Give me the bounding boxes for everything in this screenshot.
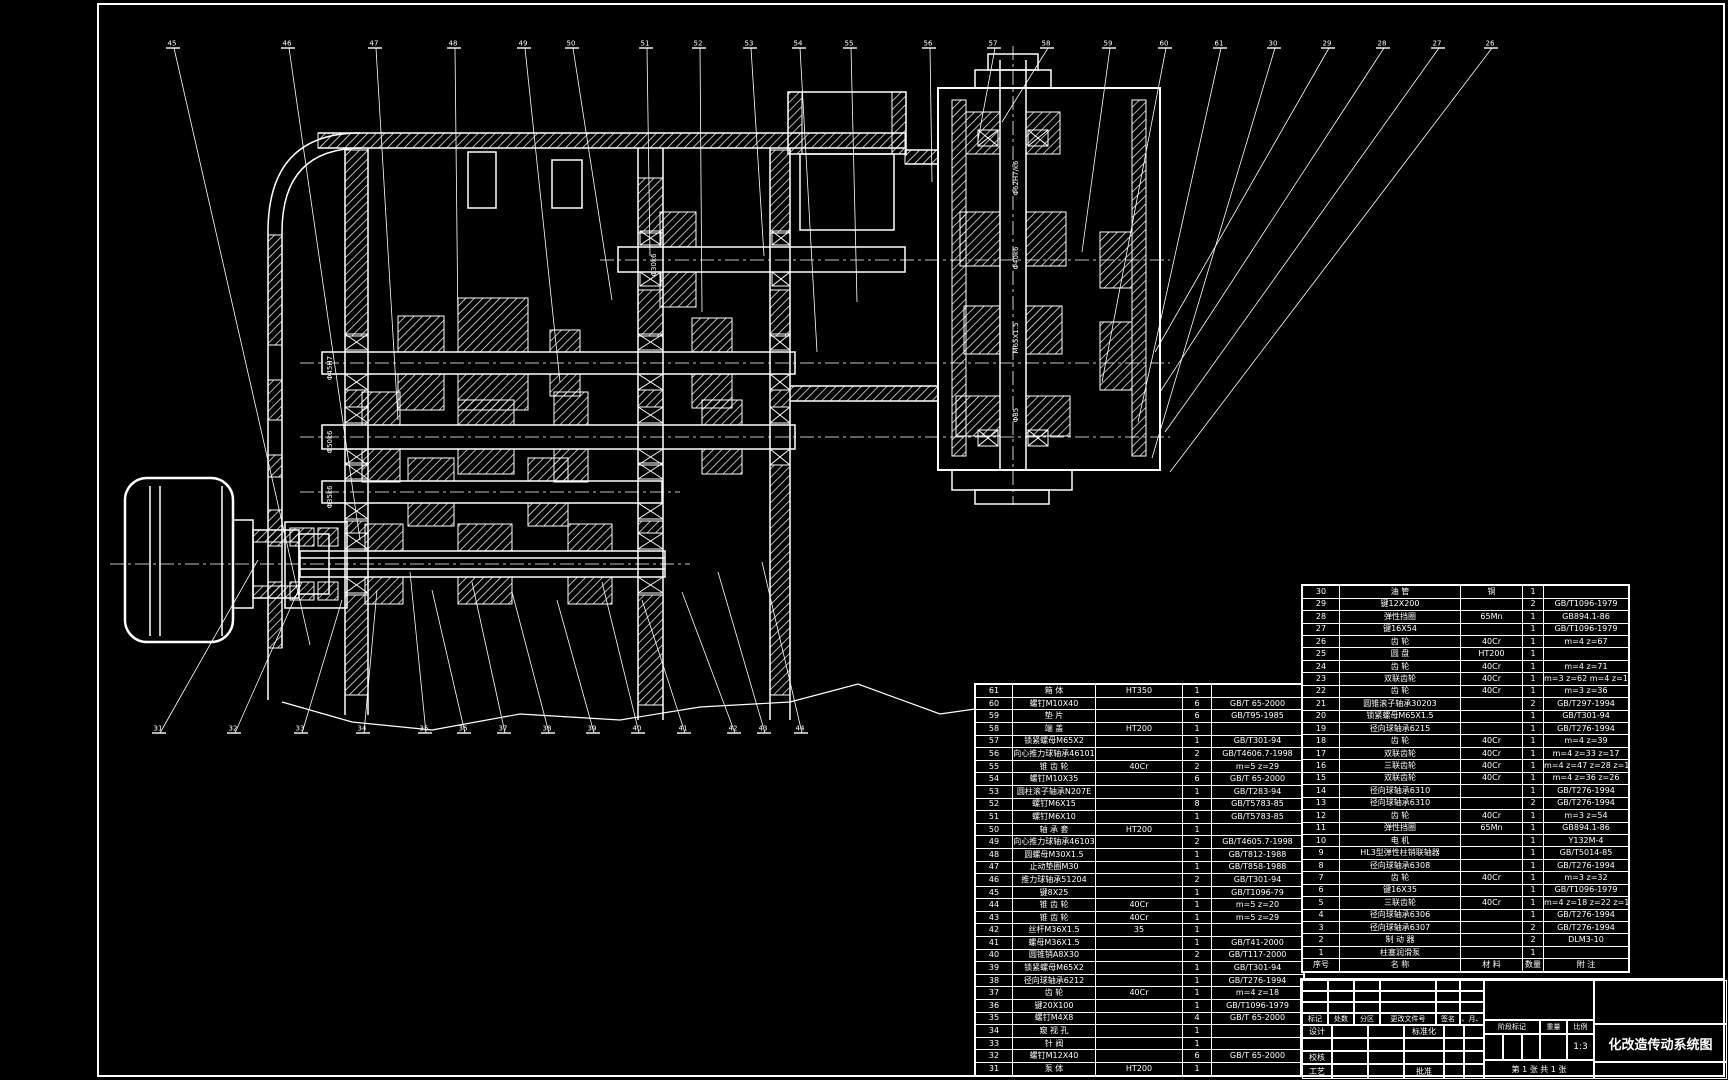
bom-cell: 键12X200 bbox=[1340, 598, 1461, 610]
title-block-cell: 工艺 bbox=[1302, 1064, 1332, 1079]
bom-cell: 齿 轮 bbox=[1340, 685, 1461, 697]
bom-cell: 53 bbox=[975, 785, 1013, 798]
bom-cell: 2 bbox=[1183, 748, 1212, 761]
part-callout: 43 bbox=[759, 725, 768, 733]
bom-cell: 8 bbox=[1302, 859, 1340, 871]
part-callout: 48 bbox=[449, 40, 458, 48]
bom-cell: 19 bbox=[1302, 723, 1340, 735]
bom-cell bbox=[1212, 1063, 1305, 1076]
title-block-cell bbox=[1484, 980, 1594, 1020]
bom-cell: 1 bbox=[1523, 859, 1544, 871]
bom-cell: 40Cr bbox=[1461, 897, 1523, 909]
bom-cell: 6 bbox=[1183, 710, 1212, 723]
bom-cell: 2 bbox=[1183, 836, 1212, 849]
bom-cell bbox=[1096, 697, 1183, 710]
bom-cell: 52 bbox=[975, 798, 1013, 811]
bom-cell: GB/T301-94 bbox=[1212, 735, 1305, 748]
bom-cell: 1 bbox=[1523, 897, 1544, 909]
bom-cell: 螺钉M6X10 bbox=[1013, 811, 1096, 824]
bom-cell: 齿 轮 bbox=[1340, 635, 1461, 647]
bom-cell: 1 bbox=[1523, 648, 1544, 660]
bom-cell bbox=[1461, 598, 1523, 610]
bom-cell bbox=[1461, 710, 1523, 722]
bom-cell: 1 bbox=[1523, 673, 1544, 685]
bom-cell: 材 料 bbox=[1461, 959, 1523, 972]
part-callout: 28 bbox=[1378, 40, 1387, 48]
bom-cell: 端 盖 bbox=[1013, 722, 1096, 735]
bom-cell: 齿 轮 bbox=[1340, 735, 1461, 747]
bom-cell: 1 bbox=[1523, 946, 1544, 958]
bom-cell: 齿 轮 bbox=[1013, 987, 1096, 1000]
title-block-cell bbox=[1332, 1025, 1368, 1038]
bom-cell: 57 bbox=[975, 735, 1013, 748]
bom-cell: 55 bbox=[975, 760, 1013, 773]
bom-cell: 60 bbox=[975, 697, 1013, 710]
title-block-cell bbox=[1484, 1034, 1503, 1060]
bom-cell: 2 bbox=[1523, 922, 1544, 934]
bom-cell: 35 bbox=[1096, 924, 1183, 937]
title-block-cell bbox=[1460, 991, 1484, 1002]
bom-cell bbox=[1096, 937, 1183, 950]
title-block-cell bbox=[1444, 1038, 1464, 1051]
bom-cell: GB/T5014-85 bbox=[1544, 847, 1630, 859]
title-block-cell: 分区 bbox=[1354, 1013, 1380, 1025]
bom-cell: 1 bbox=[1523, 834, 1544, 846]
dimension-text: Φ35k6 bbox=[326, 485, 334, 508]
bom-cell bbox=[1096, 1025, 1183, 1038]
title-block-cell: 标记 bbox=[1302, 1013, 1328, 1025]
title-block-cell: 第 1 张 共 1 张 bbox=[1484, 1060, 1594, 1079]
bom-cell bbox=[1096, 861, 1183, 874]
bom-cell: 40Cr bbox=[1461, 735, 1523, 747]
title-block-cell bbox=[1540, 1034, 1567, 1060]
part-callout: 60 bbox=[1160, 40, 1169, 48]
bom-cell: 5 bbox=[1302, 897, 1340, 909]
bom-cell: 40Cr bbox=[1461, 635, 1523, 647]
title-block-cell bbox=[1354, 980, 1380, 991]
dimension-text: Φ85 bbox=[1012, 408, 1020, 422]
bom-cell: GB/T301-94 bbox=[1212, 962, 1305, 975]
bom-cell bbox=[1096, 1012, 1183, 1025]
bom-cell: 1 bbox=[1183, 974, 1212, 987]
bom-cell: GB/T1096-79 bbox=[1212, 886, 1305, 899]
bom-cell: 9 bbox=[1302, 847, 1340, 859]
bom-cell: 54 bbox=[975, 773, 1013, 786]
bom-cell bbox=[1461, 922, 1523, 934]
part-callout: 32 bbox=[229, 725, 238, 733]
bom-cell: 三联齿轮 bbox=[1340, 897, 1461, 909]
bom-cell: GB/T297-1994 bbox=[1544, 698, 1630, 710]
bom-cell: 轴 承 套 bbox=[1013, 823, 1096, 836]
bom-cell: 键16X54 bbox=[1340, 623, 1461, 635]
bom-cell: m=3 z=32 bbox=[1544, 872, 1630, 884]
bom-cell: 1 bbox=[1523, 723, 1544, 735]
title-block-cell bbox=[1464, 1064, 1484, 1079]
bom-cell: GB/T276-1994 bbox=[1544, 922, 1630, 934]
bom-cell: 59 bbox=[975, 710, 1013, 723]
bom-cell: GB/T812-1988 bbox=[1212, 848, 1305, 861]
bom-cell bbox=[1461, 797, 1523, 809]
bom-cell bbox=[1461, 623, 1523, 635]
bom-cell bbox=[1461, 884, 1523, 896]
bom-cell: 径向球轴承6215 bbox=[1340, 723, 1461, 735]
title-block-cell bbox=[1436, 980, 1460, 991]
bom-cell: 柱塞润滑泵 bbox=[1340, 946, 1461, 958]
bom-cell: 圆锥滚子轴承30203 bbox=[1340, 698, 1461, 710]
bom-cell bbox=[1096, 949, 1183, 962]
bom-cell: 1 bbox=[1523, 660, 1544, 672]
dimension-text: M65X1.5 bbox=[1012, 323, 1020, 354]
bom-cell: 56 bbox=[975, 748, 1013, 761]
bom-cell: GB/T4605.7-1998 bbox=[1212, 836, 1305, 849]
bom-cell: DLM3-10 bbox=[1544, 934, 1630, 946]
bom-cell bbox=[1461, 847, 1523, 859]
bom-cell: GB/T5783-85 bbox=[1212, 798, 1305, 811]
part-callout: 36 bbox=[459, 725, 468, 733]
bom-cell: 20 bbox=[1302, 710, 1340, 722]
bom-cell: 29 bbox=[1302, 598, 1340, 610]
bom-cell: 40Cr bbox=[1461, 760, 1523, 772]
bom-cell: 49 bbox=[975, 836, 1013, 849]
title-block-cell bbox=[1302, 991, 1328, 1002]
bom-cell: 1 bbox=[1183, 811, 1212, 824]
bom-cell: 40Cr bbox=[1461, 772, 1523, 784]
bom-cell: 13 bbox=[1302, 797, 1340, 809]
bom-cell: 27 bbox=[1302, 623, 1340, 635]
bom-cell: 38 bbox=[975, 974, 1013, 987]
title-block-cell: 1:3 bbox=[1567, 1034, 1594, 1060]
bom-cell: 58 bbox=[975, 722, 1013, 735]
part-callout: 39 bbox=[588, 725, 597, 733]
bom-cell bbox=[1461, 723, 1523, 735]
bom-cell: 1 bbox=[1183, 684, 1212, 697]
bom-cell: 28 bbox=[1302, 611, 1340, 623]
bom-cell: 2 bbox=[1183, 949, 1212, 962]
bom-cell: 32 bbox=[975, 1050, 1013, 1063]
title-block-cell bbox=[1444, 1064, 1464, 1079]
dimension-text: Φ50k6 bbox=[326, 430, 334, 453]
title-block-cell bbox=[1594, 1062, 1727, 1079]
part-callout: 54 bbox=[794, 40, 803, 48]
bom-cell: 6 bbox=[1302, 884, 1340, 896]
part-callout: 50 bbox=[567, 40, 576, 48]
part-callout: 34 bbox=[358, 725, 367, 733]
bom-cell: 1 bbox=[1523, 884, 1544, 896]
title-block-cell bbox=[1328, 991, 1354, 1002]
bom-cell: 锥 齿 轮 bbox=[1013, 899, 1096, 912]
title-block-cell bbox=[1436, 991, 1460, 1002]
part-callout: 30 bbox=[1269, 40, 1278, 48]
bom-cell: 1 bbox=[1523, 710, 1544, 722]
bom-cell: 25 bbox=[1302, 648, 1340, 660]
title-block-cell bbox=[1380, 991, 1436, 1002]
bom-cell: GB894.1-86 bbox=[1544, 611, 1630, 623]
bom-cell: HL3型弹性柱销联轴器 bbox=[1340, 847, 1461, 859]
bom-cell: 1 bbox=[1183, 848, 1212, 861]
bom-cell: 1 bbox=[1523, 585, 1544, 598]
title-block-cell bbox=[1460, 1002, 1484, 1013]
bom-cell: m=4 z=39 bbox=[1544, 735, 1630, 747]
bom-cell: GB/T117-2000 bbox=[1212, 949, 1305, 962]
title-block-cell bbox=[1404, 1038, 1444, 1051]
title-block-cell bbox=[1404, 1051, 1444, 1064]
bom-cell: 1 bbox=[1183, 924, 1212, 937]
title-block-cell bbox=[1436, 1002, 1460, 1013]
bom-cell: 17 bbox=[1302, 747, 1340, 759]
title-block-cell: 签名 bbox=[1436, 1013, 1460, 1025]
bom-cell: 2 bbox=[1523, 598, 1544, 610]
bom-cell: 39 bbox=[975, 962, 1013, 975]
title-block-cell bbox=[1464, 1025, 1484, 1038]
bom-cell: 40Cr bbox=[1096, 987, 1183, 1000]
part-callout: 35 bbox=[420, 725, 429, 733]
part-callout: 46 bbox=[283, 40, 292, 48]
title-block-cell bbox=[1354, 1002, 1380, 1013]
bom-cell: 双联齿轮 bbox=[1340, 772, 1461, 784]
bom-cell: m=3 z=36 bbox=[1544, 685, 1630, 697]
bom-cell bbox=[1096, 962, 1183, 975]
bom-cell bbox=[1461, 934, 1523, 946]
title-block-cell bbox=[1368, 1025, 1404, 1038]
bom-cell: 14 bbox=[1302, 785, 1340, 797]
bom-cell: 三联齿轮 bbox=[1340, 760, 1461, 772]
bom-cell: 2 bbox=[1183, 760, 1212, 773]
bom-cell: 3 bbox=[1302, 922, 1340, 934]
bom-cell: 4 bbox=[1183, 1012, 1212, 1025]
part-callout: 59 bbox=[1104, 40, 1113, 48]
part-callout: 55 bbox=[845, 40, 854, 48]
part-callout: 26 bbox=[1486, 40, 1495, 48]
bom-cell bbox=[1096, 1000, 1183, 1013]
part-callout: 27 bbox=[1433, 40, 1442, 48]
part-callout: 38 bbox=[543, 725, 552, 733]
bom-cell: 44 bbox=[975, 899, 1013, 912]
title-block-cell: 比例 bbox=[1567, 1020, 1594, 1034]
bom-cell: 双联齿轮 bbox=[1340, 747, 1461, 759]
title-block-cell: 处数 bbox=[1328, 1013, 1354, 1025]
bom-cell: 40Cr bbox=[1461, 810, 1523, 822]
bom-cell: GB/T 65-2000 bbox=[1212, 1050, 1305, 1063]
bom-cell: 径向球轴承6308 bbox=[1340, 859, 1461, 871]
bom-cell: 名 称 bbox=[1340, 959, 1461, 972]
bom-cell: 1 bbox=[1523, 735, 1544, 747]
bom-cell: 1 bbox=[1183, 1037, 1212, 1050]
title-block-cell: 阶段标记 bbox=[1484, 1020, 1540, 1034]
part-callout: 49 bbox=[519, 40, 528, 48]
bom-cell: 65Mn bbox=[1461, 611, 1523, 623]
part-callout: 42 bbox=[729, 725, 738, 733]
title-block-cell bbox=[1332, 1051, 1368, 1064]
bom-cell: GB/T1096-1979 bbox=[1544, 623, 1630, 635]
bom-cell: GB894.1-86 bbox=[1544, 822, 1630, 834]
bom-cell: m=4 z=67 bbox=[1544, 635, 1630, 647]
bom-cell: 40Cr bbox=[1096, 911, 1183, 924]
bom-cell: 23 bbox=[1302, 673, 1340, 685]
title-block-cell bbox=[1332, 1038, 1368, 1051]
bom-cell: 1 bbox=[1183, 785, 1212, 798]
bom-cell: 锥 齿 轮 bbox=[1013, 760, 1096, 773]
part-callout: 58 bbox=[1042, 40, 1051, 48]
bom-cell: 圆 盘 bbox=[1340, 648, 1461, 660]
bom-cell: 1 bbox=[1183, 1025, 1212, 1038]
title-block-cell: 标准化 bbox=[1404, 1025, 1444, 1038]
bom-cell: HT200 bbox=[1461, 648, 1523, 660]
bom-cell: 丝杆M36X1.5 bbox=[1013, 924, 1096, 937]
bom-cell: 26 bbox=[1302, 635, 1340, 647]
bom-cell: GB/T95-1985 bbox=[1212, 710, 1305, 723]
title-block-cell bbox=[1594, 980, 1727, 1024]
bom-cell: GB/T1096-1979 bbox=[1544, 884, 1630, 896]
bom-cell: GB/T301-94 bbox=[1544, 710, 1630, 722]
bom-cell: 制 动 器 bbox=[1340, 934, 1461, 946]
bom-cell: 窥 视 孔 bbox=[1013, 1025, 1096, 1038]
part-callout: 29 bbox=[1323, 40, 1332, 48]
bom-cell bbox=[1461, 859, 1523, 871]
bom-cell: 推力球轴承51204 bbox=[1013, 874, 1096, 887]
bom-cell: m=4 z=18 z=22 z=19 bbox=[1544, 897, 1630, 909]
bom-cell: 24 bbox=[1302, 660, 1340, 672]
bom-cell: 61 bbox=[975, 684, 1013, 697]
title-block-cell bbox=[1464, 1038, 1484, 1051]
bom-cell: 齿 轮 bbox=[1340, 660, 1461, 672]
title-block-cell bbox=[1380, 1002, 1436, 1013]
bom-cell bbox=[1461, 698, 1523, 710]
bom-cell bbox=[1461, 834, 1523, 846]
bom-cell: 1 bbox=[1523, 623, 1544, 635]
bom-cell: GB/T1096-1979 bbox=[1212, 1000, 1305, 1013]
bom-cell: 33 bbox=[975, 1037, 1013, 1050]
bom-cell bbox=[1212, 924, 1305, 937]
bom-cell: 键16X35 bbox=[1340, 884, 1461, 896]
bom-cell: m=5 z=29 bbox=[1212, 911, 1305, 924]
drawing-sheet: 4546474849505152535455565758596061302928… bbox=[0, 0, 1728, 1080]
bom-cell: 4 bbox=[1302, 909, 1340, 921]
bom-cell: GB/T 65-2000 bbox=[1212, 1012, 1305, 1025]
bom-cell: 40Cr bbox=[1096, 760, 1183, 773]
bom-cell: GB/T276-1994 bbox=[1544, 723, 1630, 735]
title-block-cell bbox=[1368, 1051, 1404, 1064]
bom-cell: 向心推力球轴承46103 bbox=[1013, 836, 1096, 849]
title-block-cell bbox=[1302, 1002, 1328, 1013]
bom-cell: 34 bbox=[975, 1025, 1013, 1038]
bom-cell: GB/T276-1994 bbox=[1544, 785, 1630, 797]
title-block-cell bbox=[1444, 1051, 1464, 1064]
bom-cell: 15 bbox=[1302, 772, 1340, 784]
bom-cell: 2 bbox=[1523, 797, 1544, 809]
bom-cell: 键20X100 bbox=[1013, 1000, 1096, 1013]
bom-cell: 1 bbox=[1523, 822, 1544, 834]
dimension-text: Φ40k6 bbox=[1012, 246, 1020, 269]
bom-cell bbox=[1544, 946, 1630, 958]
part-callout: 56 bbox=[924, 40, 933, 48]
bom-cell: 键8X25 bbox=[1013, 886, 1096, 899]
bom-cell: 1 bbox=[1183, 861, 1212, 874]
bom-cell: 弹性挡圈 bbox=[1340, 822, 1461, 834]
part-callout: 40 bbox=[633, 725, 642, 733]
bom-cell: 21 bbox=[1302, 698, 1340, 710]
bom-cell: 51 bbox=[975, 811, 1013, 824]
bom-cell: GB/T858-1988 bbox=[1212, 861, 1305, 874]
bom-cell: 40Cr bbox=[1461, 872, 1523, 884]
bom-cell: 螺钉M6X15 bbox=[1013, 798, 1096, 811]
title-block-cell bbox=[1302, 980, 1328, 991]
bom-cell: 螺钉M12X40 bbox=[1013, 1050, 1096, 1063]
title-block-cell: 更改文件号 bbox=[1380, 1013, 1436, 1025]
bom-cell bbox=[1544, 585, 1630, 598]
bom-cell: HT350 bbox=[1096, 684, 1183, 697]
bom-cell bbox=[1212, 1025, 1305, 1038]
bom-cell: 1 bbox=[1523, 760, 1544, 772]
bom-cell: 65Mn bbox=[1461, 822, 1523, 834]
bom-cell bbox=[1096, 836, 1183, 849]
bom-cell: 1 bbox=[1523, 810, 1544, 822]
parts-list-right: 30油 管铜129键12X2002GB/T1096-197928弹性挡圈65Mn… bbox=[1301, 584, 1630, 973]
bom-cell: 6 bbox=[1183, 773, 1212, 786]
bom-cell: GB/T1096-1979 bbox=[1544, 598, 1630, 610]
bom-cell: 12 bbox=[1302, 810, 1340, 822]
part-callout: 61 bbox=[1215, 40, 1224, 48]
bom-cell: 43 bbox=[975, 911, 1013, 924]
bom-cell bbox=[1096, 874, 1183, 887]
bom-cell bbox=[1544, 648, 1630, 660]
bom-cell: GB/T301-94 bbox=[1212, 874, 1305, 887]
bom-cell: 圆螺母M30X1.5 bbox=[1013, 848, 1096, 861]
bom-cell: 锁紧螺母M65X2 bbox=[1013, 735, 1096, 748]
part-callout: 45 bbox=[168, 40, 177, 48]
title-block-cell: 年、月、日 bbox=[1460, 1013, 1484, 1025]
bom-cell: 48 bbox=[975, 848, 1013, 861]
bom-cell: GB/T276-1994 bbox=[1544, 797, 1630, 809]
title-block-cell: 设计 bbox=[1302, 1025, 1332, 1038]
part-callout: 33 bbox=[296, 725, 305, 733]
bom-cell: HT200 bbox=[1096, 1063, 1183, 1076]
bom-cell: 36 bbox=[975, 1000, 1013, 1013]
bom-cell: 垫 片 bbox=[1013, 710, 1096, 723]
bom-cell: 1 bbox=[1523, 611, 1544, 623]
dimension-text: Φ62H7/k6 bbox=[1012, 160, 1020, 196]
bom-cell: 1 bbox=[1523, 772, 1544, 784]
bom-cell: 径向球轴承6306 bbox=[1340, 909, 1461, 921]
bom-cell: 径向球轴承6310 bbox=[1340, 785, 1461, 797]
bom-cell: 35 bbox=[975, 1012, 1013, 1025]
bom-cell: 1 bbox=[1523, 685, 1544, 697]
bom-cell bbox=[1096, 848, 1183, 861]
bom-cell: GB/T41-2000 bbox=[1212, 937, 1305, 950]
title-block-cell bbox=[1503, 1034, 1522, 1060]
title-block: 标记处数分区更改文件号签名年、月、日设计标准化校核工艺批准阶段标记重量比例1:3… bbox=[1300, 978, 1725, 1077]
bom-cell: 6 bbox=[1183, 1050, 1212, 1063]
bom-cell: 2 bbox=[1302, 934, 1340, 946]
bom-cell: 锁紧螺母M65X2 bbox=[1013, 962, 1096, 975]
dimension-text: Φ30k6 bbox=[650, 253, 658, 276]
bom-cell: 45 bbox=[975, 886, 1013, 899]
bom-cell: 油 管 bbox=[1340, 585, 1461, 598]
bom-cell: m=4 z=47 z=28 z=18 bbox=[1544, 760, 1630, 772]
part-callout: 44 bbox=[796, 725, 805, 733]
bom-cell: 40Cr bbox=[1461, 685, 1523, 697]
bom-cell: 向心推力球轴承46101 bbox=[1013, 748, 1096, 761]
bom-cell: GB/T276-1994 bbox=[1212, 974, 1305, 987]
parts-list-left: 61箱 体HT350160螺钉M10X406GB/T 65-200059垫 片6… bbox=[974, 683, 1305, 1077]
title-block-cell bbox=[1332, 1064, 1368, 1079]
title-block-cell: 校核 bbox=[1302, 1051, 1332, 1064]
bom-cell: 1 bbox=[1523, 747, 1544, 759]
bom-cell bbox=[1096, 974, 1183, 987]
bom-cell bbox=[1212, 1037, 1305, 1050]
bom-cell bbox=[1461, 946, 1523, 958]
bom-cell: 37 bbox=[975, 987, 1013, 1000]
bom-cell: 螺母M36X1.5 bbox=[1013, 937, 1096, 950]
